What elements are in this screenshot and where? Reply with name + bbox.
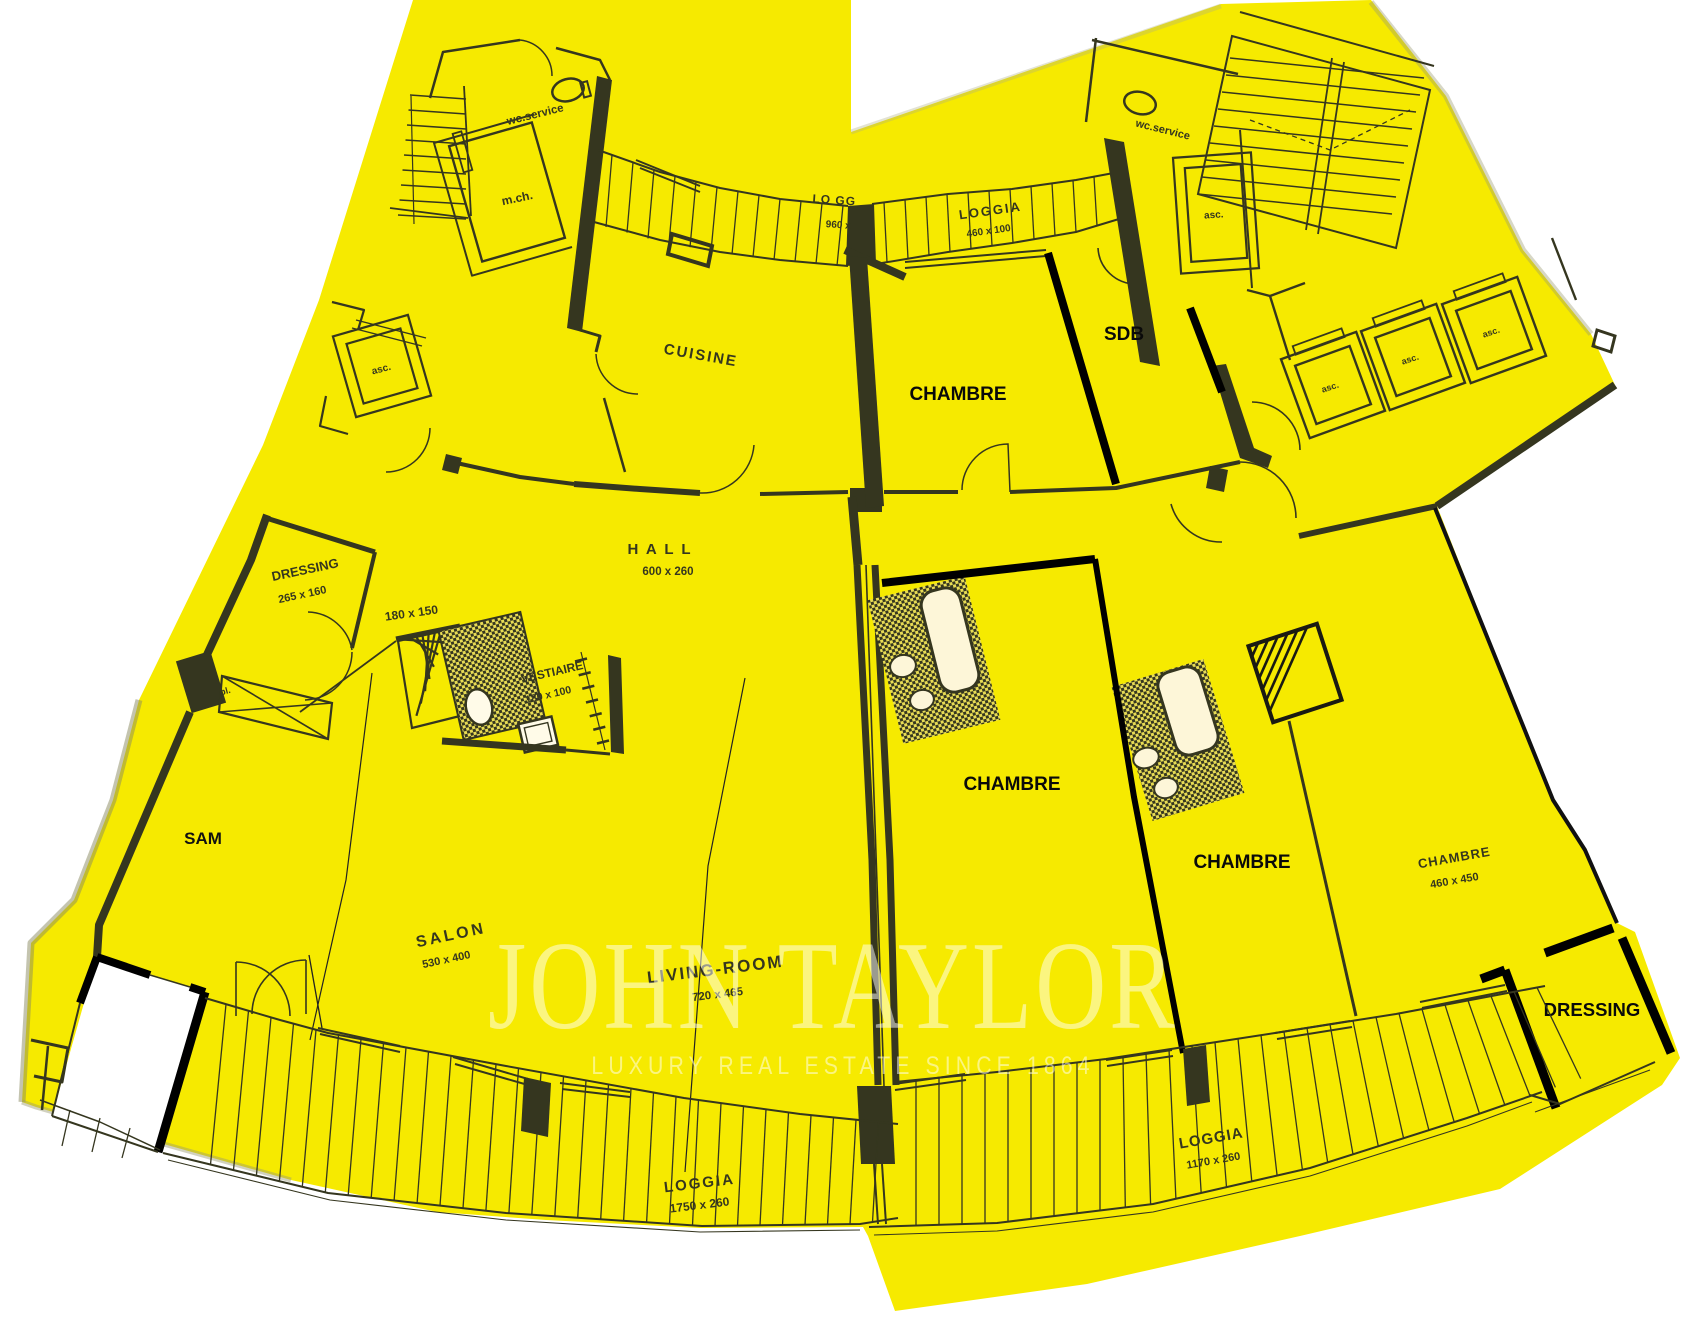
svg-text:CHAMBRE: CHAMBRE xyxy=(909,384,1006,405)
svg-text:SAM: SAM xyxy=(184,829,222,848)
svg-text:DRESSING: DRESSING xyxy=(1544,999,1641,1020)
svg-text:600 x 260: 600 x 260 xyxy=(642,566,693,578)
svg-text:JOHN TAYLOR: JOHN TAYLOR xyxy=(488,916,1178,1055)
svg-text:LUXURY REAL ESTATE SINCE 1864: LUXURY REAL ESTATE SINCE 1864 xyxy=(591,1051,1094,1079)
svg-text:960 x: 960 x xyxy=(825,219,851,232)
svg-text:CHAMBRE: CHAMBRE xyxy=(1193,852,1290,873)
svg-text:SDB: SDB xyxy=(1104,324,1144,345)
svg-text:asc.: asc. xyxy=(1204,209,1224,221)
svg-text:H A L L: H A L L xyxy=(627,541,692,558)
svg-text:CHAMBRE: CHAMBRE xyxy=(963,774,1060,795)
